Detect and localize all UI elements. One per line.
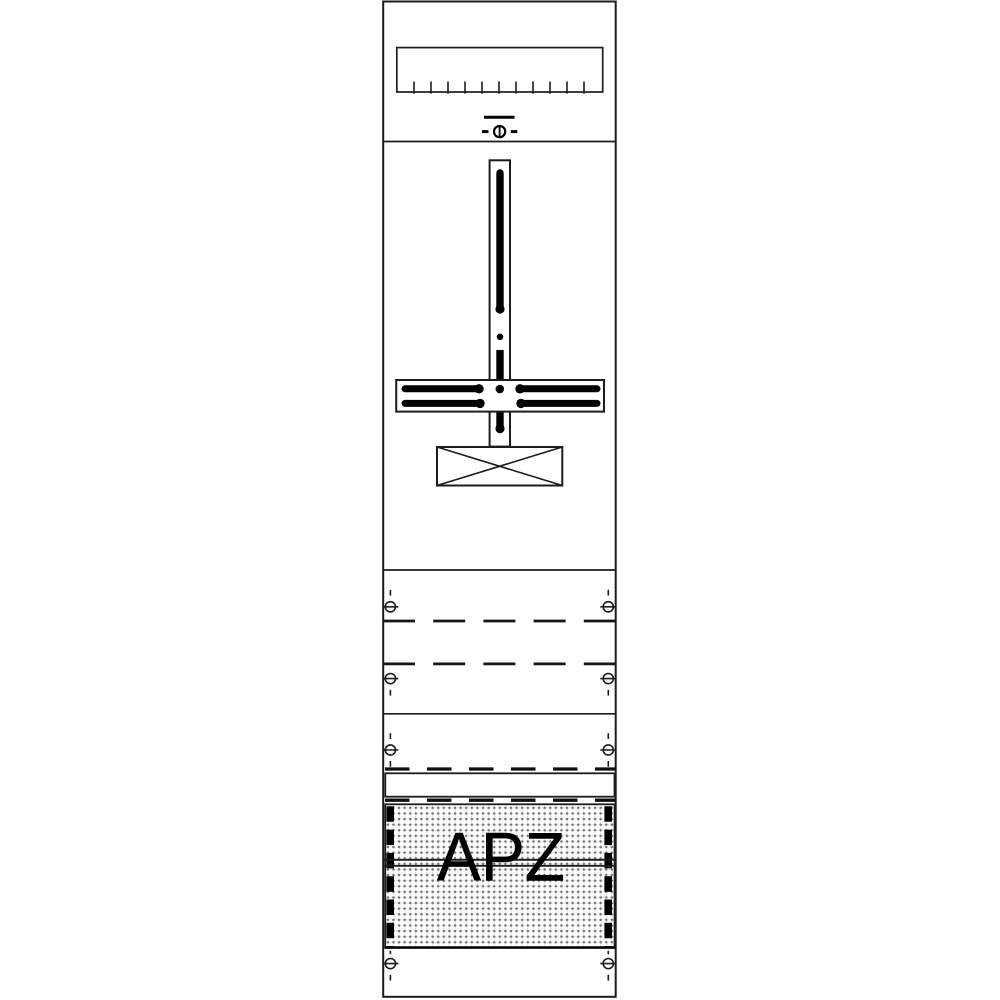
svg-text:APZ: APZ [437, 819, 565, 895]
